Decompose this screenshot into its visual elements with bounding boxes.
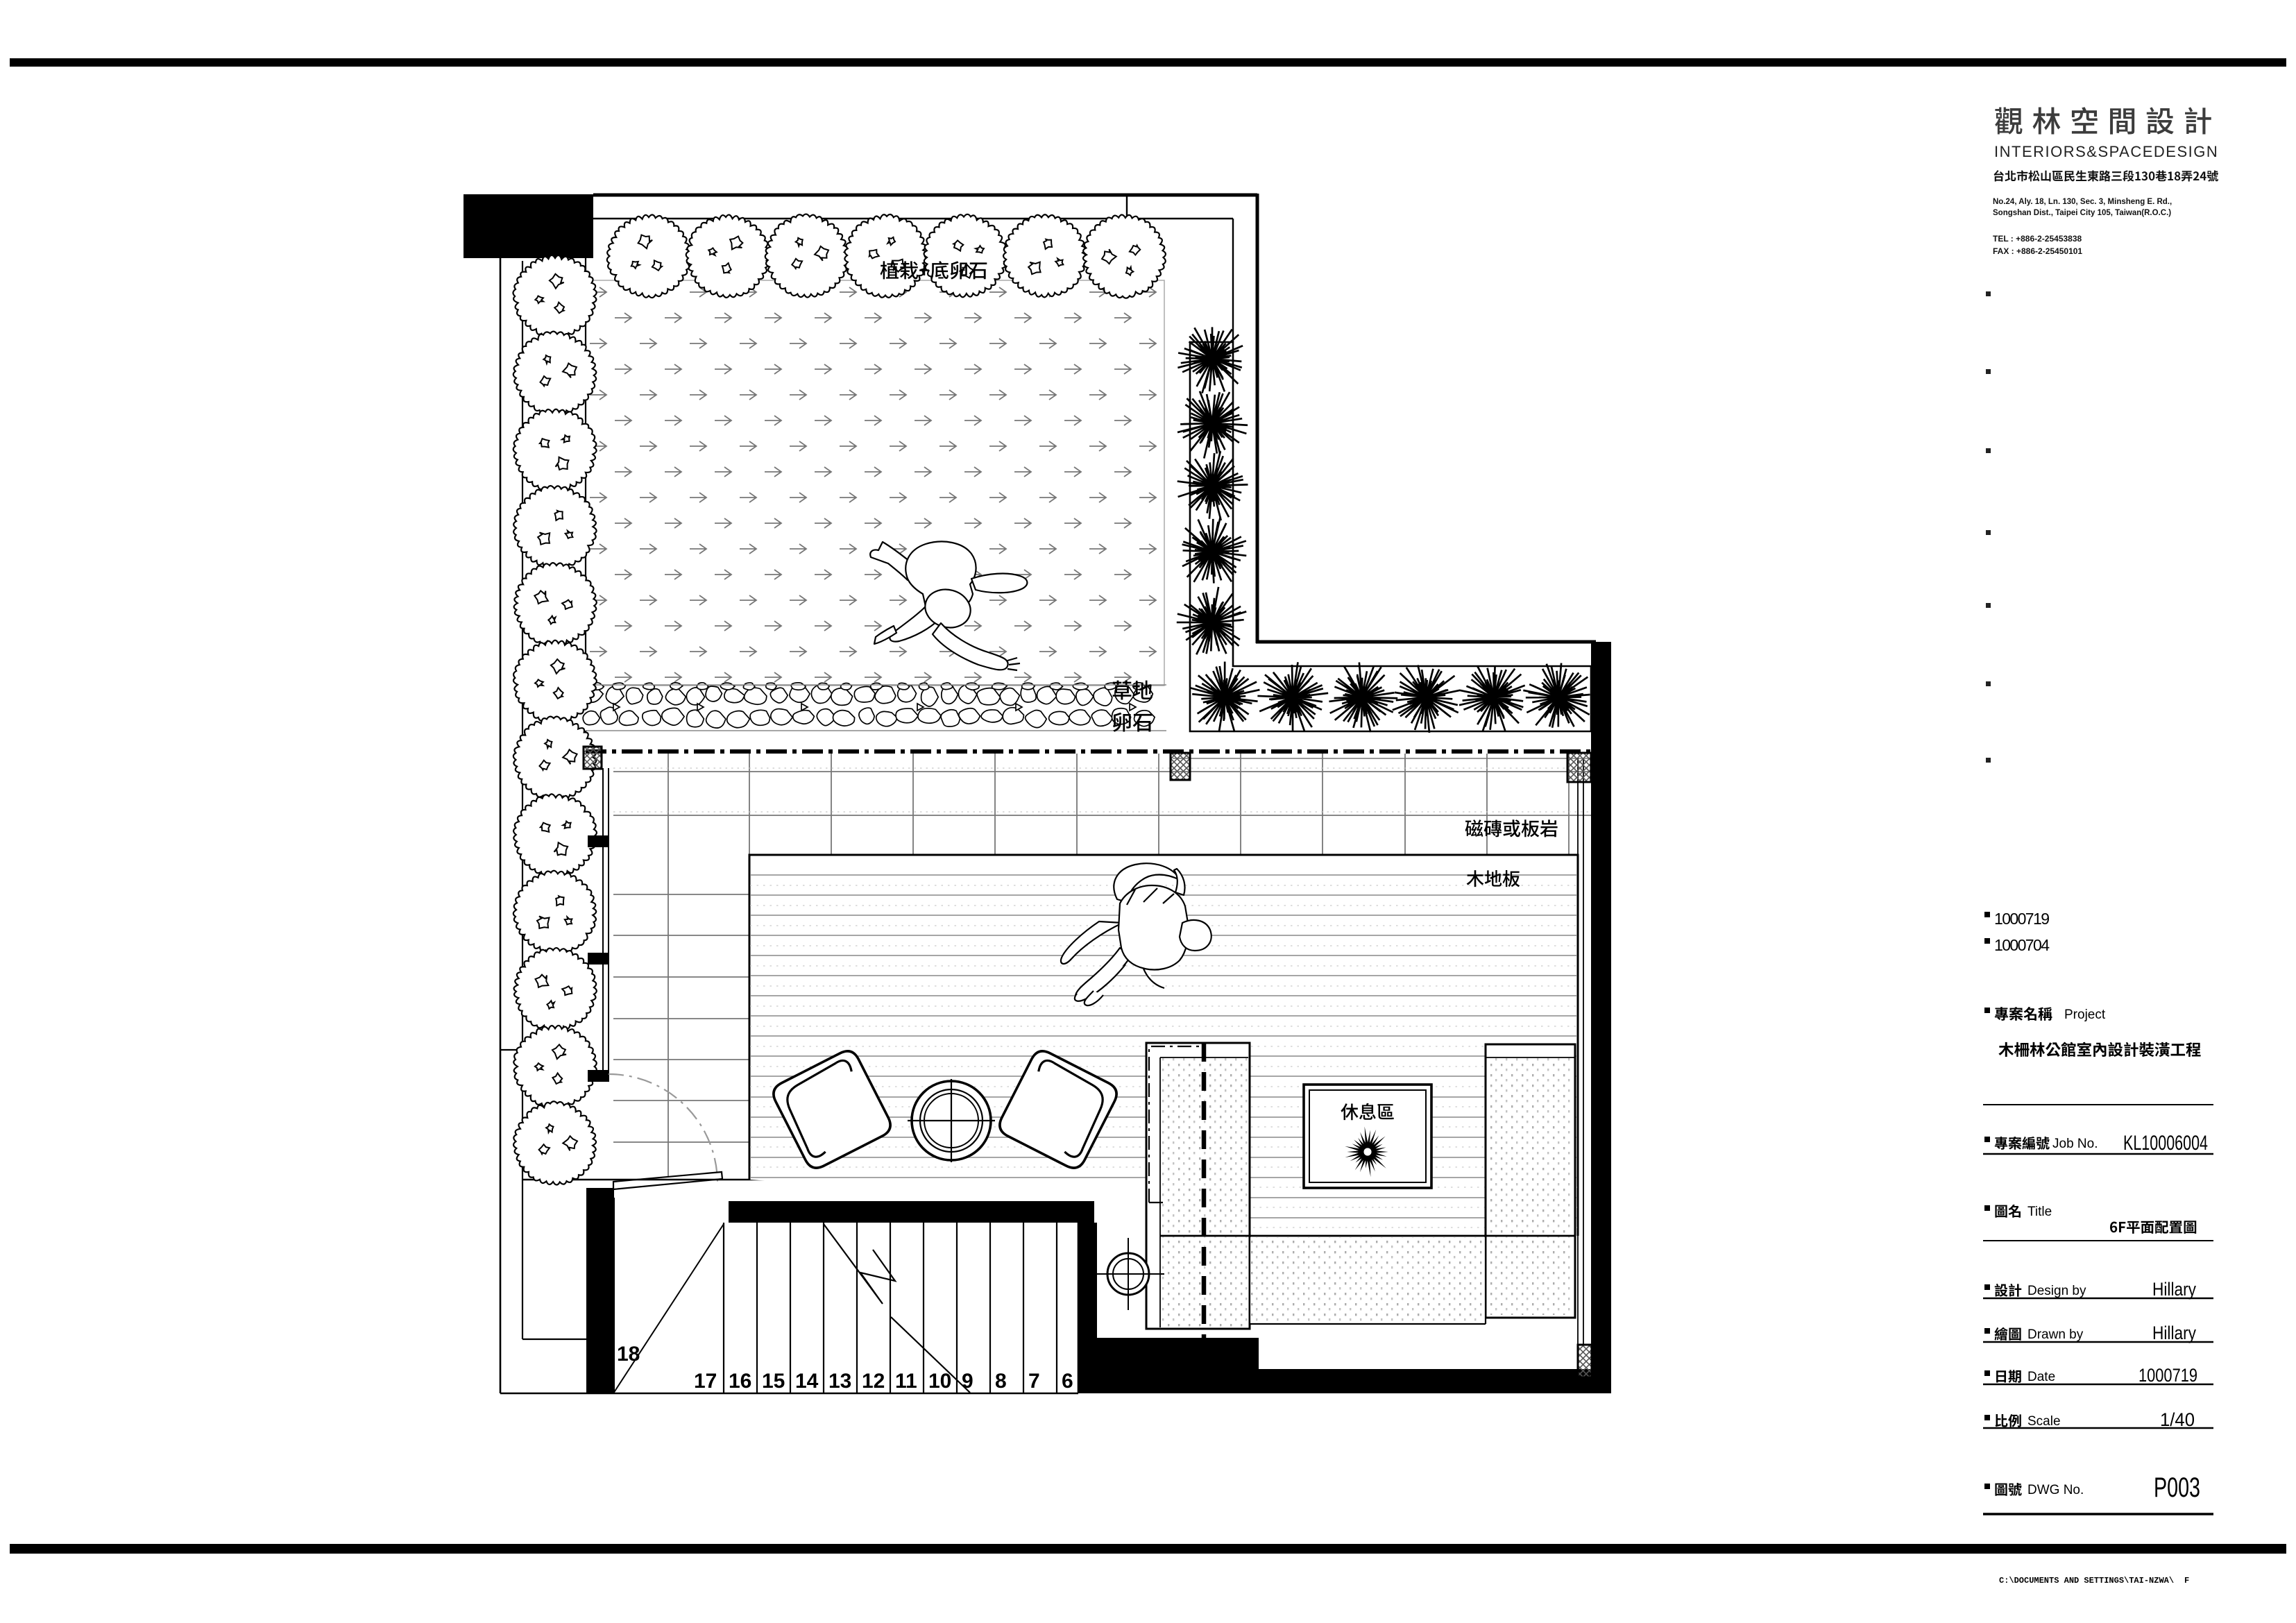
svg-text:C:\DOCUMENTS AND SETTINGS\TAI-: C:\DOCUMENTS AND SETTINGS\TAI-NZWA\: [1999, 1576, 2174, 1586]
svg-text:17: 17: [694, 1370, 717, 1393]
svg-text:Drawn by: Drawn by: [2027, 1327, 2084, 1342]
svg-text:Hillary: Hillary: [2152, 1279, 2196, 1300]
svg-text:KL10006004: KL10006004: [2123, 1132, 2208, 1155]
svg-text:16: 16: [729, 1370, 751, 1393]
svg-text:Songshan Dist., Taipei City 10: Songshan Dist., Taipei City 105, Taiwan(…: [1993, 209, 2171, 217]
svg-text:Project: Project: [2064, 1008, 2106, 1022]
svg-text:11: 11: [895, 1370, 917, 1393]
svg-text:INTERIORS&SPACEDESIGN: INTERIORS&SPACEDESIGN: [1994, 143, 2218, 160]
svg-text:15: 15: [762, 1370, 785, 1393]
svg-text:18: 18: [617, 1343, 640, 1366]
svg-text:No.24, Aly. 18, Ln. 130, Sec.: No.24, Aly. 18, Ln. 130, Sec. 3, Minshen…: [1993, 198, 2172, 206]
svg-text:12: 12: [862, 1370, 885, 1393]
svg-text:14: 14: [795, 1370, 819, 1393]
svg-text:1000719: 1000719: [1994, 910, 2050, 928]
svg-text:Design by: Design by: [2027, 1284, 2086, 1298]
svg-text:1/40: 1/40: [2160, 1409, 2195, 1430]
svg-text:7: 7: [1028, 1370, 1040, 1393]
svg-text:Title: Title: [2027, 1205, 2052, 1219]
svg-text:F: F: [2184, 1576, 2189, 1586]
svg-text:9: 9: [962, 1370, 973, 1393]
svg-text:Date: Date: [2027, 1370, 2055, 1384]
svg-text:8: 8: [995, 1370, 1007, 1393]
svg-text:TEL : +886-2-25453838: TEL : +886-2-25453838: [1993, 234, 2082, 244]
svg-text:13: 13: [828, 1370, 851, 1393]
svg-text:Scale: Scale: [2027, 1414, 2061, 1429]
svg-text:1000719: 1000719: [2138, 1365, 2197, 1386]
svg-text:6: 6: [1062, 1370, 1073, 1393]
svg-text:DWG No.: DWG No.: [2027, 1483, 2084, 1497]
svg-text:1000704: 1000704: [1994, 936, 2050, 954]
svg-text:10: 10: [928, 1370, 951, 1393]
svg-text:FAX : +886-2-25450101: FAX : +886-2-25450101: [1993, 246, 2082, 256]
svg-text:P003: P003: [2154, 1472, 2200, 1503]
svg-text:Job No.: Job No.: [2052, 1137, 2098, 1151]
svg-text:Hillary: Hillary: [2152, 1323, 2196, 1343]
